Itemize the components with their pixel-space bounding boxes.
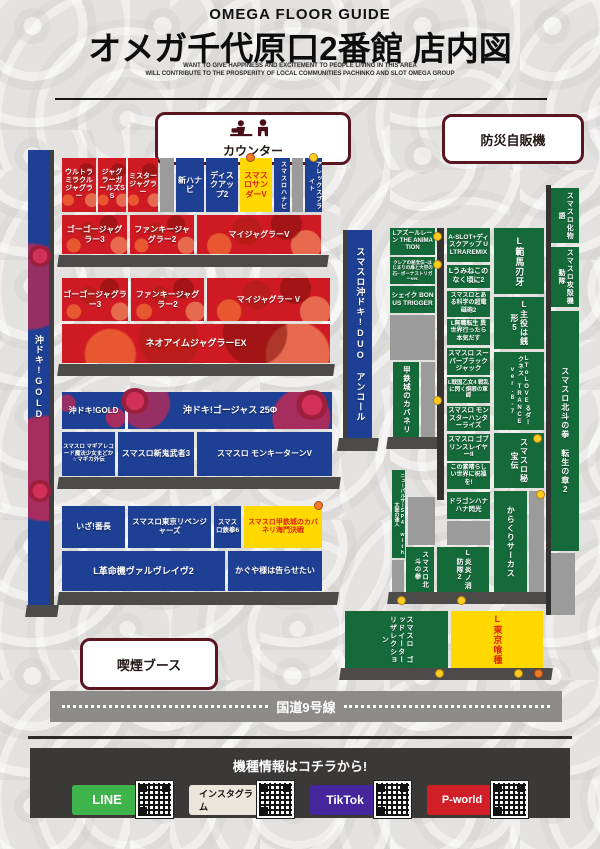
marker-dot bbox=[314, 501, 323, 510]
smoking-label: 喫煙ブース bbox=[117, 655, 181, 674]
filler-block bbox=[390, 315, 435, 360]
road-dots bbox=[344, 705, 550, 708]
machine-block: ミスタージャグラー bbox=[128, 158, 158, 212]
marker-dot bbox=[533, 434, 542, 443]
header-divider bbox=[55, 98, 547, 100]
machine-block: ゴーゴージャグラー3 bbox=[62, 215, 127, 254]
machine-block: マイジャグラーV bbox=[197, 215, 321, 254]
island-base bbox=[386, 437, 440, 449]
machine-block: スマスロ沖ドキ!DUO アンコール bbox=[343, 230, 372, 438]
machine-block: スマスロ モンキーターンV bbox=[197, 432, 332, 476]
machine-block: スマスロ スーパーブラックジャック bbox=[447, 348, 490, 375]
machine-block: L主役は銭形5 bbox=[494, 297, 544, 349]
machine-block: L炎炎ノ消防隊2 bbox=[437, 547, 489, 592]
machine-block: ウルトラミラクルジャグラー bbox=[62, 158, 96, 212]
machine-block: ジャグラーガールズSS bbox=[98, 158, 126, 212]
road-bar: 国道9号線 bbox=[50, 691, 562, 722]
machine-block: この素晴らしい世界に祝福を! bbox=[447, 463, 490, 489]
floor-guide-poster: OMEGA FLOOR GUIDE オメガ千代原口2番館 店内図 WANT TO… bbox=[0, 0, 600, 849]
island-base bbox=[337, 438, 379, 451]
island-base bbox=[57, 592, 339, 605]
smoking-booth-box: 喫煙ブース bbox=[80, 638, 218, 690]
marker-dot bbox=[433, 396, 442, 405]
island-base bbox=[57, 477, 341, 489]
machine-block: スマスロ ゴブリンスレイヤーII bbox=[447, 434, 490, 461]
machine-block: Lアズールレーン THE ANIMATION bbox=[390, 228, 435, 255]
marker-dot bbox=[435, 669, 444, 678]
machine-block: スマスロ新鬼武者3 bbox=[118, 432, 194, 476]
filler-block bbox=[529, 491, 544, 592]
machine-block: ドラゴンハナハナ閃光 bbox=[447, 492, 490, 519]
vending-label: 防災自販機 bbox=[480, 130, 545, 149]
machine-block: 甲鉄城のカバネリ bbox=[393, 362, 419, 437]
hibiscus-art bbox=[28, 245, 52, 267]
machine-block: 新ハナビ bbox=[176, 158, 204, 212]
header-eyebrow: OMEGA FLOOR GUIDE bbox=[0, 6, 600, 23]
marker-dot bbox=[433, 260, 442, 269]
machine-block: L革命機ヴァルヴレイヴ2 bbox=[62, 551, 225, 591]
hibiscus-art bbox=[28, 480, 52, 502]
machine-block: スマスロ ゴッドイーターリザレクション bbox=[345, 611, 448, 668]
machine-block: ディスクアップ2 bbox=[206, 158, 238, 212]
machine-block: スマスロ モンスターハンターライズ bbox=[447, 406, 490, 431]
island-base bbox=[25, 605, 59, 617]
machine-block: スマスロ甲鉄城のカバネリ海門決戦 bbox=[244, 506, 322, 548]
footer-divider bbox=[28, 736, 572, 739]
machine-block: スマスロ マギアレコード魔法少女まどか☆マギカ外伝 bbox=[62, 432, 115, 476]
machine-block: LToLOVEるダークネス TRANCE ver.8-7 bbox=[494, 352, 544, 430]
machine-block: クレアの秘宝伝~はじまりの扉と大空の石~ ボーナストリガーver. bbox=[390, 257, 435, 284]
machine-block: ニューパルサーSP4 with太鼓の達人 bbox=[392, 470, 405, 558]
marker-dot bbox=[534, 669, 543, 678]
island-base bbox=[57, 255, 329, 267]
machine-block: いざ!番長 bbox=[62, 506, 125, 548]
marker-dot bbox=[433, 232, 442, 241]
marker-dot bbox=[536, 490, 545, 499]
hibiscus-art bbox=[120, 388, 150, 414]
road-dots bbox=[62, 705, 268, 708]
marker-dot bbox=[457, 596, 466, 605]
machine-block: L戦国乙女4 戦乱に閃く炯眼の軍師 bbox=[447, 377, 490, 403]
machine-block: スマスロ東京リベンジャーズ bbox=[128, 506, 211, 548]
machine-block: L東京喰種 bbox=[451, 611, 543, 668]
machine-block: Lうみねこのなく頃に2 bbox=[447, 265, 490, 288]
pworld-qr-code[interactable] bbox=[491, 781, 528, 818]
filler-block bbox=[392, 560, 404, 592]
tiktok-badge[interactable]: TikTok bbox=[310, 781, 411, 818]
hibiscus-art bbox=[295, 390, 329, 420]
machine-block: マイジャグラー V bbox=[207, 278, 330, 321]
machine-block: アレックスブライト bbox=[305, 158, 322, 212]
machine-block: スマスロサンダーV bbox=[240, 158, 272, 212]
filler-block bbox=[551, 553, 575, 615]
machine-block: A-SLOT+ディスクアップ ULTRAREMIX bbox=[447, 228, 490, 262]
island-base bbox=[387, 592, 549, 604]
marker-dot bbox=[397, 596, 406, 605]
social-badges-row: LINE インスタグラム TikTok P-world bbox=[72, 781, 528, 818]
filler-block bbox=[408, 497, 435, 545]
tiktok-qr-code[interactable] bbox=[374, 781, 411, 818]
header-tagline-1: WANT TO GIVE HAPPINESS AND EXCITEMENT TO… bbox=[0, 63, 600, 69]
filler-block bbox=[160, 158, 174, 212]
machine-block: ゴーゴージャグラー3 bbox=[62, 278, 128, 321]
machine-block: L無職転生 異世界行ったら本気だす bbox=[447, 319, 490, 345]
filler-block bbox=[447, 521, 490, 545]
machine-block: からくりサーカス bbox=[494, 491, 527, 592]
machine-block: シェイク BONUS TRIGGER bbox=[390, 286, 435, 313]
line-qr-code[interactable] bbox=[136, 781, 173, 818]
footer-bar: 機種情報はコチラから! LINE インスタグラム TikTok P-world bbox=[30, 748, 570, 818]
machine-block: スマスロとある科学の超電磁砲2 bbox=[447, 291, 490, 317]
disaster-vending-box: 防災自販機 bbox=[442, 114, 584, 164]
machine-block: スマスロ北斗の拳 転生の章2 bbox=[551, 311, 579, 551]
machine-block: スマスロ鉄拳6 bbox=[214, 506, 241, 548]
machine-block: スマスロハナビ bbox=[274, 158, 290, 212]
header-tagline-2: WILL CONTRIBUTE TO THE PROSPERITY OF LOC… bbox=[0, 71, 600, 77]
line-badge[interactable]: LINE bbox=[72, 781, 173, 818]
machine-block: ネオアイムジャグラーEX bbox=[62, 324, 330, 363]
marker-dot bbox=[246, 153, 255, 162]
road-label: 国道9号線 bbox=[276, 697, 335, 716]
machine-block: L範馬刃牙 bbox=[494, 228, 544, 294]
machine-block: ファンキージャグラー2 bbox=[131, 278, 204, 321]
pworld-badge[interactable]: P-world bbox=[427, 781, 528, 818]
machine-block: かぐや様は告らせたい bbox=[228, 551, 322, 591]
machine-block: 沖ドキ!GOLD bbox=[28, 150, 54, 605]
machine-block: 沖ドキ!GOLD bbox=[62, 392, 125, 429]
footer-title: 機種情報はコチラから! bbox=[233, 756, 367, 775]
filler-block bbox=[292, 158, 303, 212]
machine-block: スマスロ攻殻機動隊 bbox=[551, 247, 579, 307]
marker-dot bbox=[514, 669, 523, 678]
machine-block: スマスロ化物語 bbox=[551, 188, 579, 243]
counter-icon bbox=[230, 119, 276, 142]
machine-block: ファンキージャグラー2 bbox=[130, 215, 194, 254]
instagram-badge[interactable]: インスタグラム bbox=[189, 781, 294, 818]
machine-block: スマスロ北斗の拳 bbox=[406, 547, 434, 592]
island-base bbox=[57, 364, 335, 376]
marker-dot bbox=[309, 153, 318, 162]
instagram-qr-code[interactable] bbox=[257, 781, 294, 818]
